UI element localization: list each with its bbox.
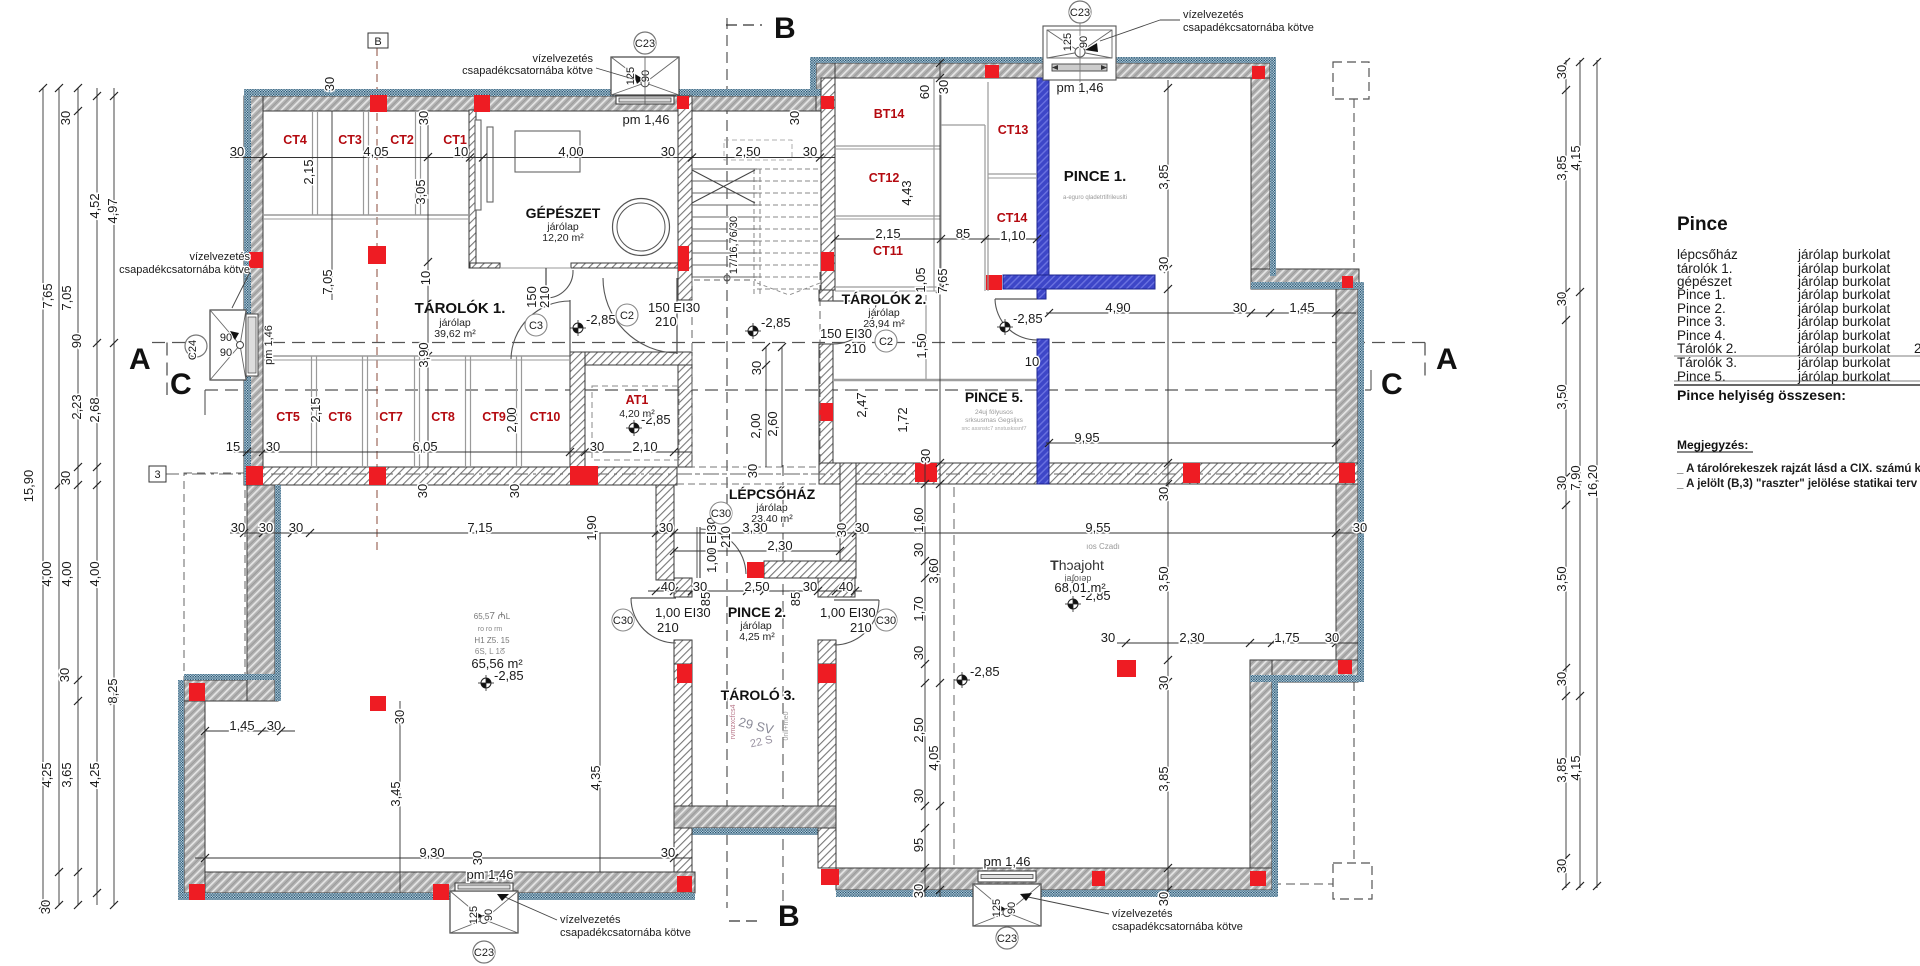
svg-text:Tárolók 2.: Tárolók 2.: [1677, 341, 1737, 356]
svg-text:4,25 m²: 4,25 m²: [739, 631, 775, 643]
svg-text:10: 10: [418, 271, 433, 285]
svg-text:4,97: 4,97: [105, 198, 120, 223]
svg-text:40: 40: [661, 579, 675, 594]
svg-text:3,50: 3,50: [1554, 566, 1569, 591]
svg-text:3: 3: [154, 469, 160, 481]
svg-text:17/16,76/30: 17/16,76/30: [728, 216, 740, 274]
svg-text:1,72: 1,72: [895, 407, 910, 432]
svg-text:vízelvezetés: vízelvezetés: [532, 53, 593, 65]
svg-text:2,00: 2,00: [504, 407, 519, 432]
svg-text:30: 30: [936, 80, 951, 94]
svg-text:4,43: 4,43: [899, 180, 914, 205]
svg-text:60: 60: [917, 85, 932, 99]
svg-text:CT7: CT7: [379, 410, 403, 424]
svg-text:CT9: CT9: [482, 410, 506, 424]
svg-text:15,90: 15,90: [21, 470, 36, 503]
svg-text:30: 30: [266, 439, 280, 454]
svg-text:85: 85: [698, 592, 713, 606]
svg-text:90: 90: [1078, 36, 1090, 48]
svg-text:90: 90: [69, 334, 84, 348]
svg-text:CT8: CT8: [431, 410, 455, 424]
svg-text:C3: C3: [529, 320, 543, 332]
svg-text:Tárolók 3.: Tárolók 3.: [1677, 355, 1737, 370]
svg-text:3,90: 3,90: [416, 342, 431, 367]
svg-text:4,15: 4,15: [1568, 145, 1583, 170]
svg-text:CT2: CT2: [390, 133, 414, 147]
svg-text:4,25: 4,25: [39, 762, 54, 787]
svg-text:30: 30: [855, 520, 869, 535]
svg-text:8,25: 8,25: [105, 678, 120, 703]
svg-text:C23: C23: [1070, 7, 1090, 19]
svg-text:30: 30: [416, 111, 431, 125]
svg-text:4,05: 4,05: [363, 144, 388, 159]
svg-text:30: 30: [918, 449, 933, 463]
svg-text:4,00: 4,00: [59, 561, 74, 586]
svg-text:csapadékcsatornába kötve: csapadékcsatornába kötve: [462, 65, 593, 77]
svg-text:4,15: 4,15: [1568, 755, 1583, 780]
svg-text:30: 30: [911, 646, 926, 660]
svg-text:30: 30: [507, 484, 522, 498]
svg-text:1,00 EI30: 1,00 EI30: [820, 605, 876, 620]
svg-text:3,50: 3,50: [1554, 384, 1569, 409]
svg-text:30: 30: [1554, 859, 1569, 873]
svg-text:30: 30: [590, 439, 604, 454]
svg-text:7,90: 7,90: [1568, 465, 1583, 490]
svg-text:Pince 3.: Pince 3.: [1677, 314, 1726, 329]
svg-text:csapadékcsatornába kötve: csapadékcsatornába kötve: [1112, 921, 1243, 933]
svg-text:30: 30: [834, 523, 849, 537]
svg-text:4,20 m²: 4,20 m²: [619, 408, 655, 420]
svg-text:vízelvezetés: vízelvezetés: [1183, 9, 1244, 21]
svg-text:pm 1,46: pm 1,46: [984, 854, 1031, 869]
svg-text:-2,85: -2,85: [970, 664, 1000, 679]
svg-text:C24: C24: [187, 340, 199, 360]
svg-text:7,05: 7,05: [59, 285, 74, 310]
svg-text:30: 30: [1156, 257, 1171, 271]
svg-text:lépcsőház: lépcsőház: [1677, 247, 1738, 262]
svg-text:68,01 m²: 68,01 m²: [1054, 580, 1106, 595]
svg-text:30: 30: [267, 718, 281, 733]
svg-text:3,85: 3,85: [1156, 164, 1171, 189]
svg-text:vízelvezetés: vízelvezetés: [189, 251, 250, 263]
svg-text:2,68: 2,68: [87, 397, 102, 422]
svg-text:30: 30: [659, 520, 673, 535]
svg-text:15: 15: [226, 439, 240, 454]
svg-text:GÉPÉSZET: GÉPÉSZET: [526, 205, 601, 221]
svg-text:C23: C23: [997, 933, 1017, 945]
svg-text:90: 90: [1006, 902, 1018, 914]
svg-text:AT1: AT1: [626, 393, 649, 407]
svg-text:90: 90: [220, 347, 232, 359]
svg-text:210: 210: [657, 620, 679, 635]
svg-text:Thɔajoht: Thɔajoht: [1050, 557, 1104, 573]
svg-text:1,00 EI30: 1,00 EI30: [704, 517, 719, 573]
svg-text:30: 30: [661, 144, 675, 159]
svg-text:30: 30: [1101, 630, 1115, 645]
svg-text:B: B: [778, 900, 800, 933]
svg-text:210: 210: [844, 341, 866, 356]
svg-text:2: 2: [1914, 341, 1920, 356]
svg-text:2,60: 2,60: [765, 411, 780, 436]
svg-text:A: A: [1436, 343, 1458, 376]
svg-text:30: 30: [1156, 892, 1171, 906]
svg-text:30: 30: [661, 845, 675, 860]
svg-text:30: 30: [322, 77, 337, 91]
svg-text:30: 30: [259, 520, 273, 535]
svg-text:2,15: 2,15: [308, 397, 323, 422]
svg-text:2,30: 2,30: [767, 538, 792, 553]
svg-text:7,65: 7,65: [935, 268, 950, 293]
svg-text:3,60: 3,60: [926, 558, 941, 583]
svg-text:210: 210: [850, 620, 872, 635]
svg-text:járólap burkolat: járólap burkolat: [1797, 341, 1891, 356]
svg-text:Pince: Pince: [1677, 214, 1728, 235]
svg-text:1,75: 1,75: [1274, 630, 1299, 645]
svg-text:vízelvezetés: vízelvezetés: [560, 914, 621, 926]
svg-text:CT3: CT3: [338, 133, 362, 147]
svg-text:CT11: CT11: [873, 244, 903, 258]
svg-text:210: 210: [718, 526, 733, 548]
svg-text:30: 30: [911, 543, 926, 557]
svg-text:2,30: 2,30: [1179, 630, 1204, 645]
svg-text:_ A tárolórekeszek rajzát lásd: _ A tárolórekeszek rajzát lásd a CIX. sz…: [1676, 463, 1920, 475]
svg-text:BT14: BT14: [874, 107, 905, 121]
svg-text:4,00: 4,00: [87, 561, 102, 586]
svg-text:Pince helyiség összesen:: Pince helyiség összesen:: [1677, 387, 1846, 403]
svg-text:85: 85: [788, 592, 803, 606]
svg-text:65,56 m²: 65,56 m²: [471, 656, 523, 671]
svg-text:30: 30: [749, 361, 764, 375]
svg-text:járólap burkolat: járólap burkolat: [1797, 247, 1891, 262]
svg-text:CT5: CT5: [276, 410, 300, 424]
svg-text:járólap burkolat: járólap burkolat: [1797, 314, 1891, 329]
svg-text:125: 125: [1062, 33, 1074, 51]
svg-text:9,95: 9,95: [1074, 430, 1099, 445]
svg-text:C23: C23: [474, 947, 494, 959]
svg-text:2,50: 2,50: [735, 144, 760, 159]
svg-text:30: 30: [787, 111, 802, 125]
svg-text:125: 125: [991, 899, 1003, 917]
svg-text:30: 30: [1325, 630, 1339, 645]
svg-text:LÉPCSŐHÁZ: LÉPCSŐHÁZ: [729, 485, 816, 502]
svg-text:30: 30: [745, 464, 760, 478]
svg-text:csapadékcsatornába kötve: csapadékcsatornába kötve: [119, 264, 250, 276]
svg-text:2,50: 2,50: [744, 579, 769, 594]
svg-text:B: B: [774, 12, 796, 45]
svg-text:4,00: 4,00: [39, 561, 54, 586]
svg-text:3,05: 3,05: [413, 179, 428, 204]
svg-text:7,65: 7,65: [40, 283, 55, 308]
svg-text:pm 1,46: pm 1,46: [467, 867, 514, 882]
svg-text:7,15: 7,15: [467, 520, 492, 535]
svg-text:30: 30: [1554, 476, 1569, 490]
svg-text:4,05: 4,05: [926, 745, 941, 770]
svg-text:90: 90: [220, 332, 232, 344]
svg-text:2,15: 2,15: [301, 159, 316, 184]
svg-text:4,35: 4,35: [588, 765, 603, 790]
svg-text:H1 Z5. 15: H1 Z5. 15: [474, 636, 510, 645]
svg-text:30: 30: [1156, 487, 1171, 501]
svg-text:95: 95: [911, 838, 926, 852]
svg-text:C30: C30: [613, 615, 633, 627]
svg-text:PINCE 1.: PINCE 1.: [1064, 168, 1127, 185]
svg-text:9,55: 9,55: [1085, 520, 1110, 535]
svg-text:12,20 m²: 12,20 m²: [542, 232, 584, 244]
svg-text:1,60: 1,60: [911, 507, 926, 532]
svg-text:40: 40: [839, 579, 853, 594]
svg-text:A: A: [129, 343, 151, 376]
svg-text:30: 30: [415, 484, 430, 498]
svg-text:-2,85: -2,85: [586, 312, 616, 327]
svg-text:C: C: [1381, 368, 1403, 401]
svg-text:30: 30: [1554, 65, 1569, 79]
svg-text:1,00 EI30: 1,00 EI30: [655, 605, 711, 620]
svg-text:85: 85: [956, 226, 970, 241]
svg-text:-2,85: -2,85: [761, 315, 791, 330]
svg-text:1,70: 1,70: [911, 596, 926, 621]
svg-text:30: 30: [1233, 300, 1247, 315]
svg-text:30: 30: [693, 579, 707, 594]
svg-text:30: 30: [470, 851, 485, 865]
svg-text:30: 30: [1554, 672, 1569, 686]
svg-text:2,10: 2,10: [632, 439, 657, 454]
svg-text:150 EI30: 150 EI30: [820, 326, 872, 341]
svg-text:vízelvezetés: vízelvezetés: [1112, 908, 1173, 920]
svg-text:csapadékcsatornába kötve: csapadékcsatornába kötve: [560, 927, 691, 939]
svg-text:járólap burkolat: járólap burkolat: [1797, 355, 1891, 370]
svg-text:C30: C30: [711, 508, 731, 520]
svg-text:Pince 5.: Pince 5.: [1677, 369, 1726, 384]
svg-text:30: 30: [1353, 520, 1367, 535]
svg-text:6,05: 6,05: [412, 439, 437, 454]
svg-text:6S, L 1ᘔ: 6S, L 1ᘔ: [475, 647, 505, 656]
svg-text:30: 30: [57, 668, 72, 682]
svg-text:30: 30: [911, 789, 926, 803]
svg-text:39,62 m²: 39,62 m²: [434, 328, 476, 340]
svg-text:30: 30: [58, 111, 73, 125]
svg-text:C23: C23: [635, 38, 655, 50]
svg-text:24uj fölyusos: 24uj fölyusos: [975, 409, 1014, 416]
svg-text:CT4: CT4: [283, 133, 307, 147]
svg-text:1,45: 1,45: [1289, 300, 1314, 315]
svg-text:2,15: 2,15: [875, 226, 900, 241]
svg-text:_ A jelölt (B,3) "raszter" jel: _ A jelölt (B,3) "raszter" jelölése stat…: [1676, 478, 1920, 490]
svg-text:Pince 1.: Pince 1.: [1677, 287, 1726, 302]
svg-text:9,30: 9,30: [419, 845, 444, 860]
svg-text:PINCE 2.: PINCE 2.: [728, 604, 786, 620]
svg-text:3,85: 3,85: [1554, 757, 1569, 782]
svg-text:90: 90: [483, 909, 495, 921]
svg-text:3,65: 3,65: [59, 762, 74, 787]
svg-text:30: 30: [230, 144, 244, 159]
svg-text:2,50: 2,50: [911, 717, 926, 742]
svg-text:16,20: 16,20: [1585, 465, 1600, 498]
svg-text:4,52: 4,52: [87, 193, 102, 218]
svg-text:snc assnstc7 snstuskssnf7: snc assnstc7 snstuskssnf7: [961, 426, 1026, 432]
svg-text:3,85: 3,85: [1156, 766, 1171, 791]
svg-text:30: 30: [803, 579, 817, 594]
svg-text:65,57 ₼L: 65,57 ₼L: [474, 611, 511, 622]
svg-text:2,23: 2,23: [69, 394, 84, 419]
svg-text:a-eguro qladetrtifrileuslti: a-eguro qladetrtifrileuslti: [1063, 195, 1127, 201]
svg-text:2,00: 2,00: [748, 413, 763, 438]
svg-text:ıos Czadı: ıos Czadı: [1086, 542, 1120, 551]
svg-text:10: 10: [1025, 354, 1039, 369]
svg-text:pm 1,46: pm 1,46: [623, 112, 670, 127]
svg-text:CT10: CT10: [530, 410, 561, 424]
svg-text:rvmzxcfcs4: rvmzxcfcs4: [730, 704, 737, 739]
svg-text:0nli+rrie0: 0nli+rrie0: [783, 711, 790, 740]
svg-text:30: 30: [911, 884, 926, 898]
svg-text:Megjegyzés:: Megjegyzés:: [1677, 438, 1748, 452]
svg-text:7,05: 7,05: [320, 269, 335, 294]
svg-text:125: 125: [468, 906, 480, 924]
svg-text:30: 30: [1156, 676, 1171, 690]
svg-text:4,90: 4,90: [1105, 300, 1130, 315]
svg-text:ro ro rm: ro ro rm: [478, 626, 503, 633]
svg-text:C2: C2: [879, 336, 893, 348]
svg-text:járólap burkolat: járólap burkolat: [1797, 287, 1891, 302]
svg-text:CT13: CT13: [998, 123, 1029, 137]
svg-text:1,50: 1,50: [914, 333, 929, 358]
svg-text:30: 30: [803, 144, 817, 159]
svg-text:30: 30: [289, 520, 303, 535]
svg-text:150 EI30: 150 EI30: [648, 300, 700, 315]
svg-text:B: B: [374, 36, 381, 48]
svg-text:csapadékcsatornába kötve: csapadékcsatornába kötve: [1183, 22, 1314, 34]
svg-text:3,45: 3,45: [388, 781, 403, 806]
svg-text:járólap burkolat: járólap burkolat: [1797, 369, 1891, 384]
svg-text:srksusmas Gegsljxs: srksusmas Gegsljxs: [965, 417, 1024, 424]
svg-text:1,05: 1,05: [913, 267, 928, 292]
svg-text:pm 1,46: pm 1,46: [1057, 80, 1104, 95]
svg-text:pm 1,46: pm 1,46: [263, 325, 275, 365]
svg-text:1,10: 1,10: [1000, 228, 1025, 243]
svg-text:30: 30: [231, 520, 245, 535]
svg-text:1,45: 1,45: [229, 718, 254, 733]
svg-text:3,50: 3,50: [1156, 566, 1171, 591]
svg-text:3,85: 3,85: [1554, 155, 1569, 180]
svg-text:TÁROLÓ 3.: TÁROLÓ 3.: [721, 686, 796, 703]
svg-text:125: 125: [625, 67, 637, 85]
svg-text:210: 210: [537, 286, 552, 308]
svg-text:4,00: 4,00: [558, 144, 583, 159]
svg-text:C30: C30: [876, 615, 896, 627]
svg-text:30: 30: [392, 710, 407, 724]
svg-text:PINCE 5.: PINCE 5.: [965, 389, 1023, 405]
svg-text:C: C: [170, 368, 192, 401]
svg-text:90: 90: [640, 70, 652, 82]
svg-text:10: 10: [454, 144, 468, 159]
svg-text:CT6: CT6: [328, 410, 352, 424]
svg-text:30: 30: [58, 471, 73, 485]
svg-text:C2: C2: [620, 310, 634, 322]
svg-text:-2,85: -2,85: [1013, 311, 1043, 326]
svg-text:30: 30: [38, 900, 53, 914]
svg-text:30: 30: [1554, 292, 1569, 306]
svg-text:4,25: 4,25: [87, 762, 102, 787]
svg-text:CT12: CT12: [869, 171, 900, 185]
svg-text:CT14: CT14: [997, 211, 1028, 225]
svg-text:210: 210: [655, 314, 677, 329]
svg-text:1,90: 1,90: [584, 515, 599, 540]
svg-text:3,30: 3,30: [742, 520, 767, 535]
svg-text:2,47: 2,47: [854, 392, 869, 417]
